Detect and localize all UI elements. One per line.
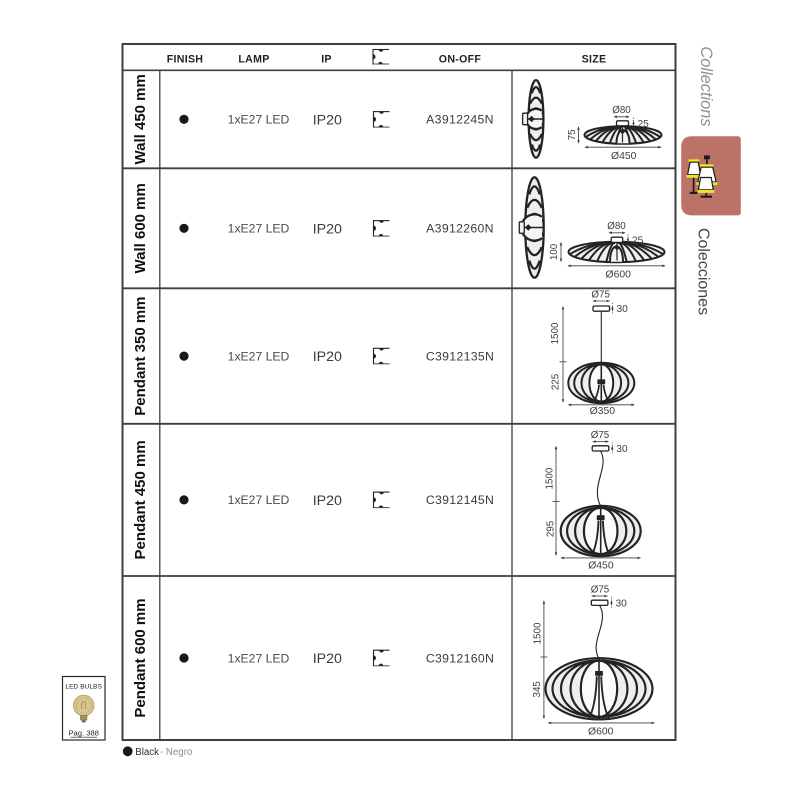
svg-text:C3912160N: C3912160N	[426, 651, 494, 665]
svg-text:1xE27 LED: 1xE27 LED	[228, 651, 290, 665]
svg-text:Pag. 388: Pag. 388	[68, 729, 98, 738]
svg-text:1500: 1500	[544, 467, 555, 489]
svg-text:C3912135N: C3912135N	[426, 349, 494, 363]
svg-text:1xE27 LED: 1xE27 LED	[228, 113, 290, 127]
svg-text:Ø80: Ø80	[607, 221, 626, 232]
svg-text:Pendant 350 mm: Pendant 350 mm	[132, 296, 149, 415]
svg-text:IP20: IP20	[313, 651, 342, 667]
svg-text:IP: IP	[321, 53, 332, 65]
svg-text:SIZE: SIZE	[582, 53, 607, 65]
svg-text:Ø80: Ø80	[612, 105, 631, 116]
svg-text:1xE27 LED: 1xE27 LED	[228, 349, 290, 363]
svg-text:Pendant 600 mm: Pendant 600 mm	[132, 598, 149, 717]
svg-text:C3912145N: C3912145N	[426, 493, 494, 507]
svg-text:25: 25	[632, 235, 644, 246]
svg-text:Ø450: Ø450	[588, 560, 614, 571]
svg-text:A3912260N: A3912260N	[426, 222, 494, 236]
svg-text:295: 295	[545, 520, 556, 537]
svg-text:1500: 1500	[532, 622, 543, 644]
svg-text:IP20: IP20	[313, 112, 342, 128]
svg-text:225: 225	[550, 373, 561, 390]
svg-text:Black: Black	[135, 747, 159, 758]
svg-text:1500: 1500	[550, 322, 561, 344]
svg-text:Ø75: Ø75	[591, 289, 610, 300]
svg-text:IP20: IP20	[313, 349, 342, 365]
svg-text:IP20: IP20	[313, 493, 342, 509]
svg-text:345: 345	[532, 681, 543, 698]
svg-text:30: 30	[616, 444, 628, 455]
svg-text:100: 100	[549, 243, 560, 260]
svg-text:FINISH: FINISH	[167, 53, 204, 65]
svg-text:Pendant 450 mm: Pendant 450 mm	[132, 440, 149, 559]
svg-text:Ø75: Ø75	[591, 585, 610, 596]
svg-text:Colecciones: Colecciones	[695, 228, 712, 315]
svg-text:Ø75: Ø75	[591, 430, 610, 441]
svg-text:Wall 450 mm: Wall 450 mm	[132, 74, 149, 164]
svg-text:Ø600: Ø600	[605, 269, 631, 280]
svg-text:LAMP: LAMP	[238, 53, 269, 65]
svg-text:A3912245N: A3912245N	[426, 113, 494, 127]
svg-text:1xE27 LED: 1xE27 LED	[228, 222, 290, 236]
svg-text:- Negro: - Negro	[160, 747, 192, 758]
svg-text:Collections: Collections	[697, 46, 715, 126]
svg-text:30: 30	[617, 304, 629, 315]
svg-text:25: 25	[638, 119, 650, 130]
svg-text:75: 75	[567, 129, 578, 140]
svg-text:Ø600: Ø600	[588, 726, 614, 737]
svg-text:Ø350: Ø350	[590, 406, 616, 417]
svg-text:IP20: IP20	[313, 221, 342, 237]
svg-text:LED BULBS: LED BULBS	[65, 684, 102, 691]
svg-text:ON-OFF: ON-OFF	[439, 53, 482, 65]
svg-text:1xE27 LED: 1xE27 LED	[228, 493, 290, 507]
svg-text:Wall 600 mm: Wall 600 mm	[132, 183, 149, 273]
svg-text:Ø450: Ø450	[611, 151, 637, 162]
svg-text:30: 30	[616, 598, 628, 609]
